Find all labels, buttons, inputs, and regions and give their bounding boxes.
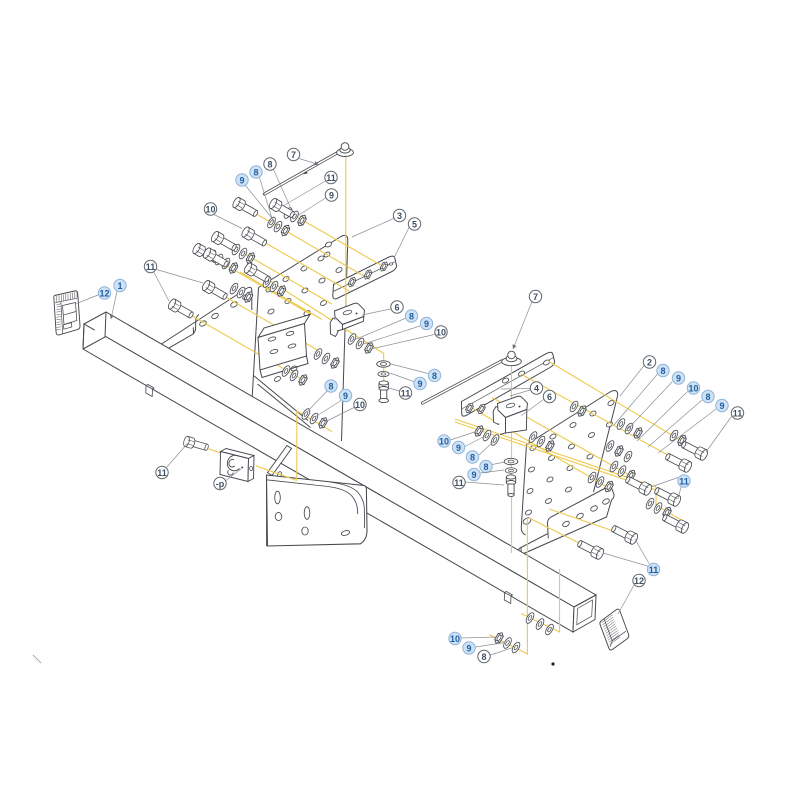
svg-text:8: 8 — [470, 452, 475, 462]
svg-text:1: 1 — [117, 281, 122, 291]
svg-text:12: 12 — [634, 576, 644, 586]
svg-text:7: 7 — [533, 292, 538, 302]
svg-text:8: 8 — [660, 366, 665, 376]
svg-text:-p: -p — [216, 479, 225, 489]
svg-text:11: 11 — [679, 476, 689, 486]
svg-text:8: 8 — [328, 381, 333, 391]
svg-text:9: 9 — [456, 443, 461, 453]
svg-text:10: 10 — [688, 383, 698, 393]
svg-text:11: 11 — [146, 262, 156, 272]
svg-text:9: 9 — [471, 470, 476, 480]
svg-text:11: 11 — [326, 173, 336, 183]
svg-text:10: 10 — [439, 436, 449, 446]
svg-text:11: 11 — [401, 388, 411, 398]
svg-text:8: 8 — [481, 652, 486, 662]
svg-text:12: 12 — [99, 288, 109, 298]
svg-text:9: 9 — [424, 319, 429, 329]
svg-text:9: 9 — [466, 643, 471, 653]
svg-text:4: 4 — [534, 383, 539, 393]
svg-text:11: 11 — [733, 408, 743, 418]
svg-text:10: 10 — [450, 634, 460, 644]
svg-text:11: 11 — [454, 478, 464, 488]
svg-text:8: 8 — [267, 159, 272, 169]
svg-text:8: 8 — [483, 462, 488, 472]
svg-text:6: 6 — [394, 302, 399, 312]
svg-text:10: 10 — [436, 327, 446, 337]
svg-text:8: 8 — [409, 311, 414, 321]
svg-text:5: 5 — [412, 219, 417, 229]
svg-text:7: 7 — [291, 150, 296, 160]
svg-text:9: 9 — [329, 190, 334, 200]
svg-text:2: 2 — [647, 357, 652, 367]
svg-text:8: 8 — [432, 371, 437, 381]
svg-text:10: 10 — [355, 400, 365, 410]
svg-text:6: 6 — [547, 392, 552, 402]
svg-text:9: 9 — [676, 373, 681, 383]
svg-text:8: 8 — [705, 392, 710, 402]
svg-text:10: 10 — [205, 204, 215, 214]
svg-text:9: 9 — [417, 379, 422, 389]
svg-text:3: 3 — [397, 211, 402, 221]
svg-text:9: 9 — [719, 401, 724, 411]
svg-text:9: 9 — [343, 391, 348, 401]
svg-text:9: 9 — [239, 175, 244, 185]
svg-text:11: 11 — [649, 565, 659, 575]
svg-text:8: 8 — [253, 167, 258, 177]
svg-text:11: 11 — [157, 468, 167, 478]
